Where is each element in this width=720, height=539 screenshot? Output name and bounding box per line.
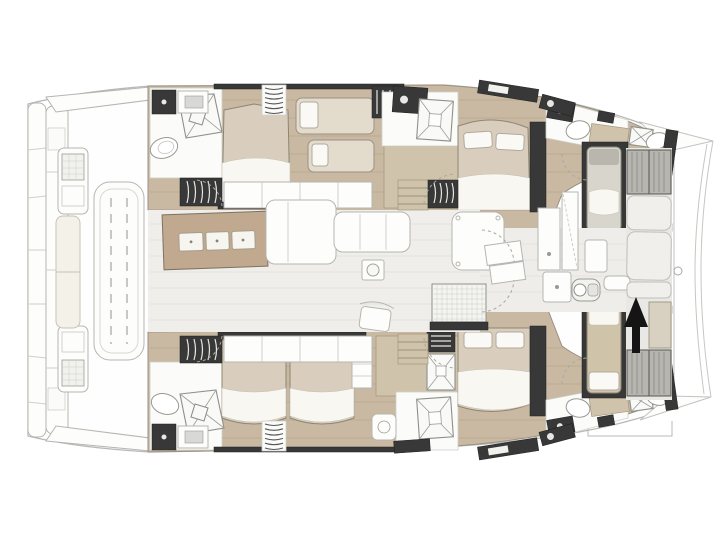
bow-lounge-cushions (627, 196, 672, 298)
shelf (398, 334, 428, 364)
windlass (572, 279, 600, 301)
bow-shackle (674, 267, 682, 275)
shower (417, 99, 454, 141)
forward-bench (604, 276, 630, 290)
wardrobe (530, 122, 546, 212)
floorplan-svg (0, 0, 720, 539)
shelf (398, 180, 428, 210)
port-forward-cabin-bed (458, 120, 546, 212)
salon-aft-starboard-steps (180, 336, 222, 363)
door-panel (538, 208, 560, 270)
toilet (372, 414, 396, 440)
starboard-sideboard (224, 336, 372, 362)
companionway-ladder (262, 85, 286, 115)
wardrobe (530, 326, 546, 416)
bow-panel (649, 302, 671, 348)
bow-sunpad-port (627, 150, 671, 194)
companionway-ladder (262, 421, 286, 451)
transom-platform (28, 103, 46, 437)
starboard-forepeak-berth (582, 300, 628, 398)
vanity (394, 439, 431, 453)
catamaran-floorplan (0, 0, 720, 539)
starboard-aft-bathroom (149, 362, 224, 450)
port-forepeak-berth (582, 142, 628, 236)
bow-sunpad-starboard (627, 350, 671, 396)
shower (417, 397, 454, 439)
shower (427, 354, 455, 390)
entry-steps-grid (430, 284, 488, 330)
bow-bridle-outer (701, 141, 713, 397)
forward-cabinets (485, 241, 526, 285)
salon-aft-port-steps (180, 178, 222, 206)
cockpit-table (94, 182, 144, 360)
helm-console-starboard (58, 326, 88, 392)
helm-console-port (58, 148, 88, 214)
port-steps-forward (428, 180, 458, 208)
galley-island (162, 211, 268, 270)
port-aft-bathroom (148, 88, 222, 178)
